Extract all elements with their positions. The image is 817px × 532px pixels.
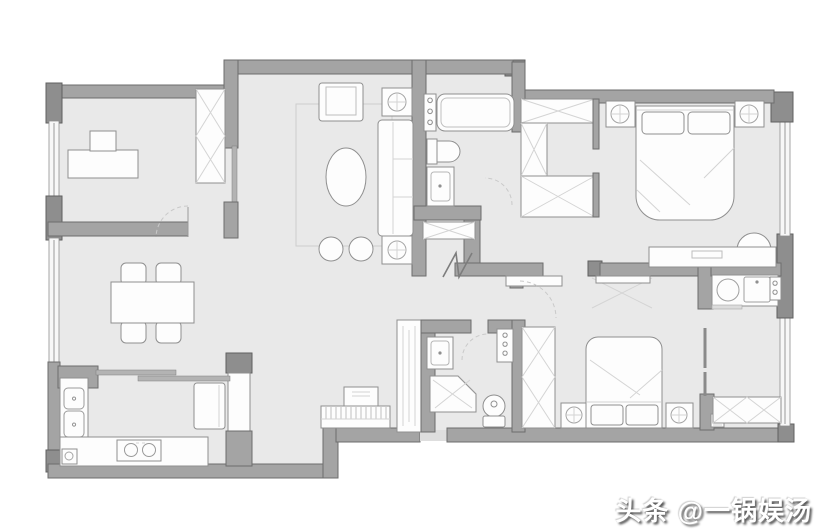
wall-kitchen-right-top	[226, 353, 252, 373]
toilet2-tank	[483, 416, 505, 427]
basin1-drain	[438, 184, 441, 187]
bedroom2-wardrobe	[522, 327, 555, 428]
kitchen-tall-cabinet	[228, 373, 250, 433]
floor-plan-page: 头条 @一锅娱汤	[0, 0, 817, 532]
piano-bench	[344, 387, 378, 407]
bedroom2-cabinet	[713, 397, 781, 423]
stool-2	[349, 237, 373, 261]
vanity-fixture	[770, 277, 781, 300]
bathtub	[437, 94, 514, 131]
wall-study-bottom	[48, 222, 188, 236]
master-pillow-right	[688, 112, 730, 134]
wall-bottom-right	[447, 428, 793, 442]
water-heater	[497, 329, 513, 362]
fridge	[194, 383, 225, 429]
bathtub-panel	[424, 94, 436, 131]
study-desk-monitor	[90, 131, 116, 151]
wall-bath1-top	[413, 60, 513, 74]
basin2-drain	[438, 351, 441, 354]
study-wardrobe	[196, 89, 225, 183]
stool-1	[319, 237, 343, 261]
wall-living-top	[224, 60, 420, 74]
wall-kitchen-right-bottom	[226, 431, 252, 466]
dining-table	[111, 282, 194, 323]
vanity-towel-bar	[712, 305, 742, 309]
closet-post-bottom	[593, 173, 599, 217]
wall-bath1-bottom	[414, 206, 481, 220]
master-pillow-left	[642, 112, 684, 134]
wall-bath2-top-left	[421, 320, 471, 333]
floor-plan-svg	[0, 0, 817, 532]
dining-chair-4	[156, 321, 181, 343]
living-sofa	[378, 120, 413, 236]
closet-post-top	[593, 99, 599, 149]
sliding-door-kitchen-a	[96, 370, 176, 375]
wall-bath1-left	[412, 60, 426, 276]
watermark-text: 头条 @一锅娱汤	[615, 491, 812, 528]
sliding-door-kitchen-b	[138, 376, 230, 381]
kitchen-corner-unit	[62, 449, 77, 464]
toilet1-tank	[427, 139, 437, 164]
vanity-sink-dot	[755, 280, 758, 283]
dining-chair-3	[121, 321, 146, 343]
bedroom2-tv	[596, 276, 650, 283]
toilet1-bowl	[437, 141, 460, 162]
wall-hall-a	[455, 263, 543, 276]
master-desk	[649, 247, 776, 267]
sliding-door-study	[232, 146, 237, 204]
study-desk	[68, 150, 138, 178]
bed2-pillow-right	[626, 405, 658, 425]
wall-study-living-upper	[224, 60, 238, 148]
toilet2-bowl	[483, 395, 505, 417]
wall-corner-top-left	[46, 83, 62, 123]
bed2-pillow-left	[591, 405, 623, 425]
wall-corner-bottom-right	[778, 424, 794, 442]
coffee-table	[326, 148, 366, 206]
wall-study-living-lower	[224, 202, 238, 238]
